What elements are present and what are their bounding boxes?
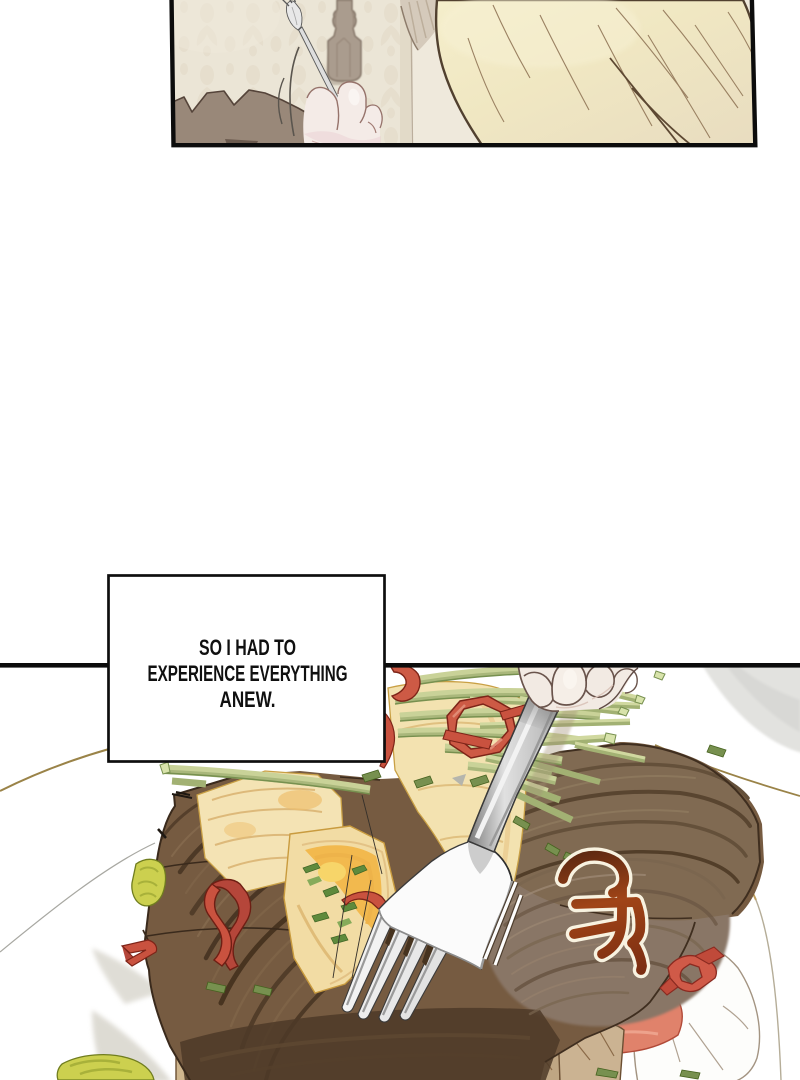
- svg-text:ANEW.: ANEW.: [220, 687, 276, 712]
- svg-text:EXPERIENCE EVERYTHING: EXPERIENCE EVERYTHING: [148, 661, 348, 686]
- svg-text:SO I HAD TO: SO I HAD TO: [199, 635, 296, 660]
